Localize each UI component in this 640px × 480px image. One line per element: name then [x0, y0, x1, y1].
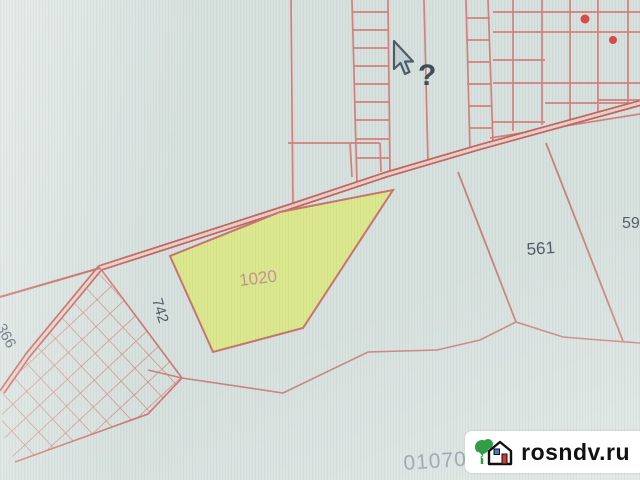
- building-marker-icon: [581, 15, 590, 24]
- map-screenshot: 1020 561 742 366 59 0107005 ? rosndv.ru: [0, 0, 640, 480]
- parcel-label-561: 561: [526, 238, 556, 259]
- help-cursor-question-glyph: ?: [418, 59, 436, 92]
- parcel-label-59: 59: [622, 215, 640, 232]
- watermark-text: rosndv.ru: [521, 439, 630, 466]
- watermark-badge: rosndv.ru: [465, 431, 640, 473]
- building-marker-icon: [609, 36, 617, 44]
- map-canvas[interactable]: 1020 561 742 366 59 0107005 ?: [0, 0, 640, 480]
- rosndv-logo-icon: [474, 437, 514, 467]
